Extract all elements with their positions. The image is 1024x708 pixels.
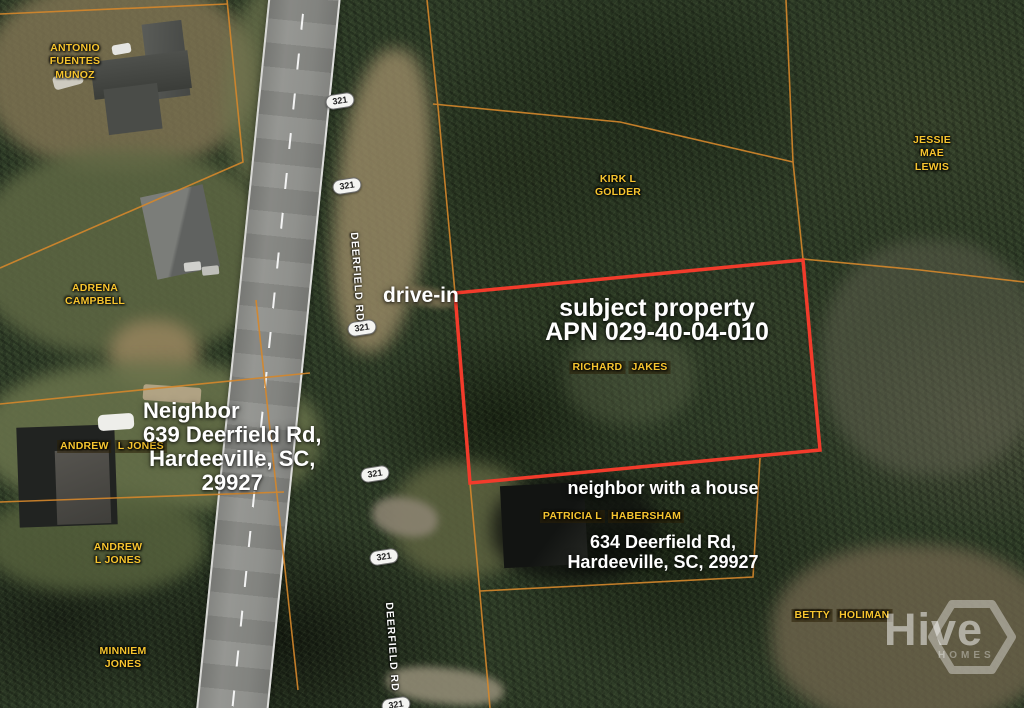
subject-title: subject property [545,296,769,320]
owner-label-adrena-campbell: ADRENA CAMPBELL [65,282,125,309]
owner-label-betty-holiman: BETTY HOLIMAN [792,609,893,622]
neighbor-639-line2: 639 Deerfield Rd, [143,423,322,447]
route-number: 321 [332,94,348,106]
neighbor-639-line1: Neighbor [143,399,322,423]
boundary-overlay [0,0,1024,708]
annotation-neighbor-with-house: neighbor with a house [567,478,758,499]
subject-apn: APN 029-40-04-010 [545,320,769,344]
owner-label-kirk-l-golder: KIRK L GOLDER [595,173,641,200]
annotation-subject-property: subject property APN 029-40-04-010 [545,296,769,344]
owner-label-jessie-mae-lewis: JESSIE MAE LEWIS [913,134,951,174]
route-number: 321 [367,467,383,479]
annotation-address-634: 634 Deerfield Rd, Hardeeville, SC, 29927 [567,532,758,572]
address-634-line1: 634 Deerfield Rd, [567,532,758,552]
owner-label-antonio-fuentes-munoz: ANTONIO FUENTES MUNOZ [50,42,100,82]
aerial-map: 321 321 321 321 321 321 DEERFIELD RD DEE… [0,0,1024,708]
route-number: 321 [376,550,392,562]
parcel-boundary-lines [0,0,1024,708]
route-number: 321 [339,179,355,191]
route-number: 321 [354,321,370,333]
owner-label-richard-jakes: RICHARD JAKES [570,361,671,374]
owner-label-andrew-l-jones-lower: ANDREW L JONES [94,541,142,568]
annotation-drive-in: drive-in [383,284,459,308]
route-number: 321 [388,698,404,708]
owner-label-patricia-l-habersham: PATRICIA L HABERSHAM [540,510,684,523]
address-634-line2: Hardeeville, SC, 29927 [567,552,758,572]
annotation-neighbor-639: Neighbor 639 Deerfield Rd, Hardeeville, … [143,399,322,495]
owner-label-minniem-jones: MINNIEM JONES [100,645,147,672]
neighbor-639-line4: 29927 [143,471,322,495]
neighbor-639-line3: Hardeeville, SC, [143,447,322,471]
